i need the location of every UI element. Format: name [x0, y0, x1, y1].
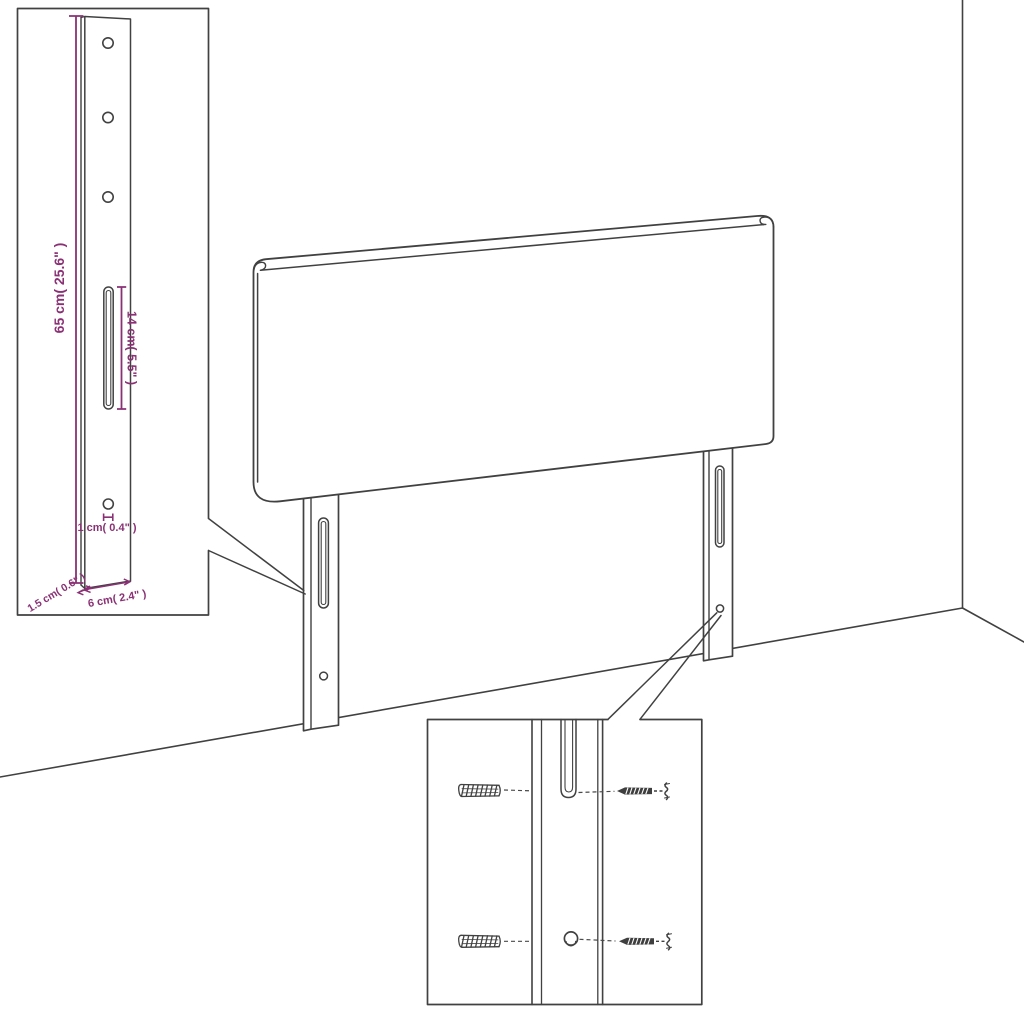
inset-leg-hole-mid [103, 112, 113, 122]
left-mounting-leg [304, 468, 339, 731]
inset-leg-small-hole [103, 499, 113, 509]
mounting-detail-callout-line [640, 616, 721, 720]
inset-leg-hole-low [103, 192, 113, 202]
right-leg-hole [716, 605, 723, 612]
dim-label-slot-length: 14 cm( 5.5" ) [125, 311, 139, 385]
callout-lines [209, 519, 722, 720]
left-leg-hole [320, 672, 328, 680]
right-mounting-leg [704, 430, 733, 661]
product-diagram-canvas: 65 cm( 25.6" ) 14 cm( 5.5" ) 1 cm( 0.4" … [0, 0, 1024, 1024]
leg-detail-callout-line [209, 551, 306, 595]
leg-detail-callout-line [209, 519, 304, 591]
dim-label-leg-height: 65 cm( 25.6" ) [51, 243, 67, 334]
left-leg-slot [319, 518, 329, 608]
floor-line-right [963, 608, 1024, 642]
inset-mounting-detail-box [428, 720, 703, 1005]
inset-leg-drawing [81, 17, 131, 589]
mounting-detail-callout-line [608, 613, 717, 720]
right-leg-slot [716, 466, 725, 547]
dim-label-hole-diameter: 1 cm( 0.4" ) [77, 522, 136, 534]
inset-leg-hole-top [103, 38, 113, 48]
inset-leg-detail-box: 65 cm( 25.6" ) 14 cm( 5.5" ) 1 cm( 0.4" … [18, 9, 209, 616]
headboard-panel [254, 216, 774, 502]
inset-leg-slot [104, 287, 113, 409]
